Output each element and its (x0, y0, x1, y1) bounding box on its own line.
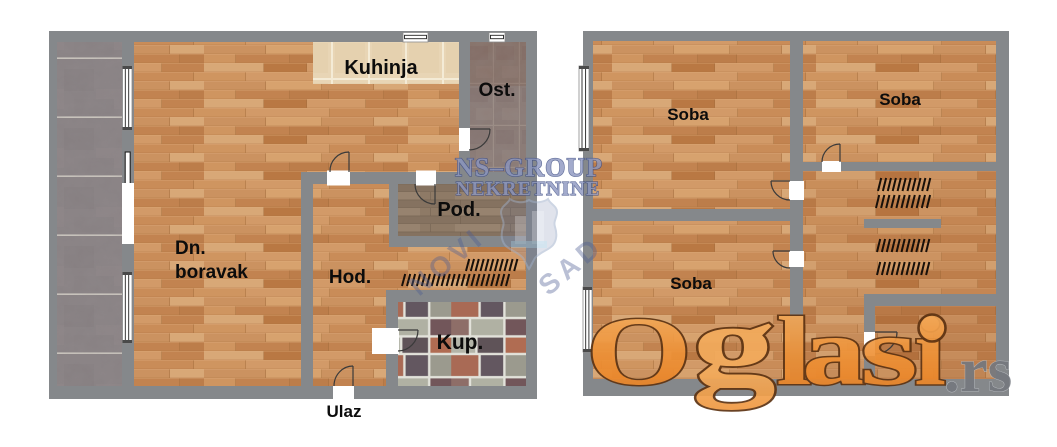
svg-text:.rs: .rs (944, 334, 1012, 405)
svg-text:Dn.: Dn. (175, 238, 206, 259)
svg-text:Pod.: Pod. (437, 199, 480, 221)
svg-text:Soba: Soba (667, 105, 709, 124)
svg-text:Hod.: Hod. (329, 267, 371, 288)
svg-text:boravak: boravak (175, 262, 248, 283)
svg-text:Soba: Soba (879, 90, 921, 109)
svg-text:a: a (802, 298, 866, 406)
svg-text:Ost.: Ost. (479, 80, 516, 101)
svg-text:Kup.: Kup. (437, 331, 484, 354)
svg-text:s: s (860, 298, 918, 406)
svg-text:NEKRETNINE: NEKRETNINE (456, 178, 600, 200)
svg-text:Kuhinja: Kuhinja (344, 57, 418, 79)
svg-text:O: O (586, 298, 692, 406)
svg-text:Ulaz: Ulaz (327, 402, 362, 421)
svg-text:g: g (692, 281, 776, 410)
